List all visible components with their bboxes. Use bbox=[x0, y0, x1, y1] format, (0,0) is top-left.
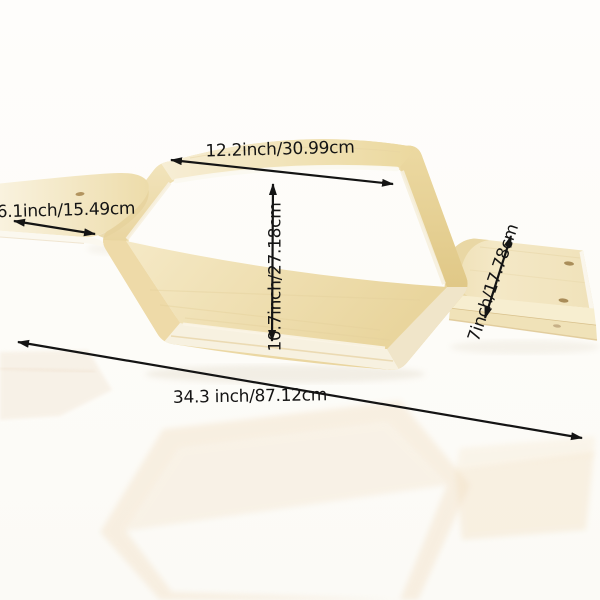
dimension-label-left-shelf-depth: 6.1inch/15.49cm bbox=[0, 201, 135, 222]
dimension-label-inner-height: 10.7inch/27.18cm bbox=[268, 203, 285, 352]
dimension-label-overall-length: 34.3 inch/87.12cm bbox=[173, 387, 327, 407]
shelf-illustration bbox=[0, 0, 600, 600]
ring-upper-right-band bbox=[400, 145, 470, 287]
product-dimension-image: 12.2inch/30.99cm 6.1inch/15.49cm 10.7inc… bbox=[0, 0, 600, 600]
dimension-label-top-width: 12.2inch/30.99cm bbox=[205, 140, 354, 161]
reflection-left-plank bbox=[0, 350, 112, 420]
